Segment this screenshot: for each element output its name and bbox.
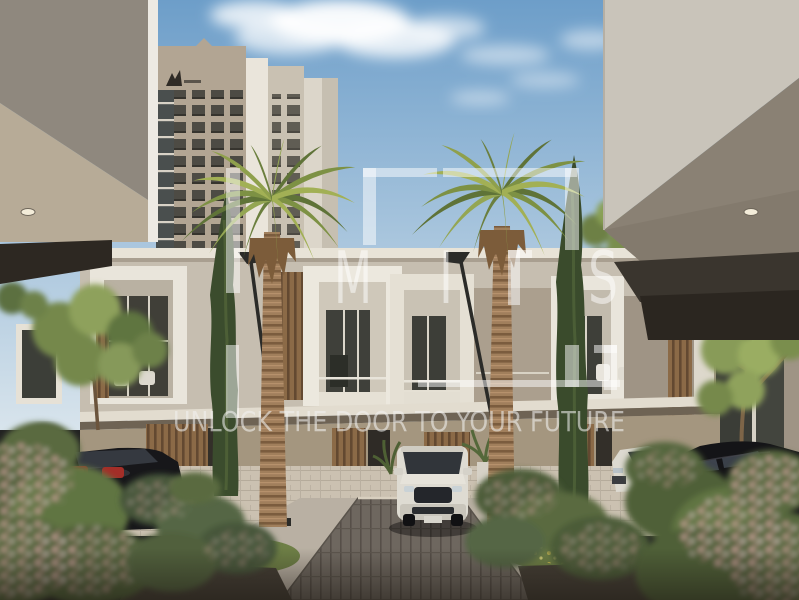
ceiling-light-left: [21, 209, 35, 216]
canopy-left: [0, 0, 158, 284]
monogram-letter-s: S: [588, 236, 618, 320]
canopy-right-fascia: [640, 290, 799, 340]
watermark-tagline: UNLOCK THE DOOR TO YOUR FUTURE: [173, 405, 625, 438]
monogram-letter-m: M: [334, 236, 372, 320]
property-rendering: M I S UNLOCK THE DOOR TO YOUR FUTURE: [0, 0, 799, 600]
car-white-suv: [389, 446, 477, 537]
foreground-shadow: [0, 548, 799, 600]
parapet: [80, 248, 720, 258]
canopy-right: [604, 0, 799, 340]
monogram-letter-i: I: [439, 236, 453, 320]
bush-court-left: [169, 472, 221, 504]
ceiling-light-right: [744, 209, 758, 216]
